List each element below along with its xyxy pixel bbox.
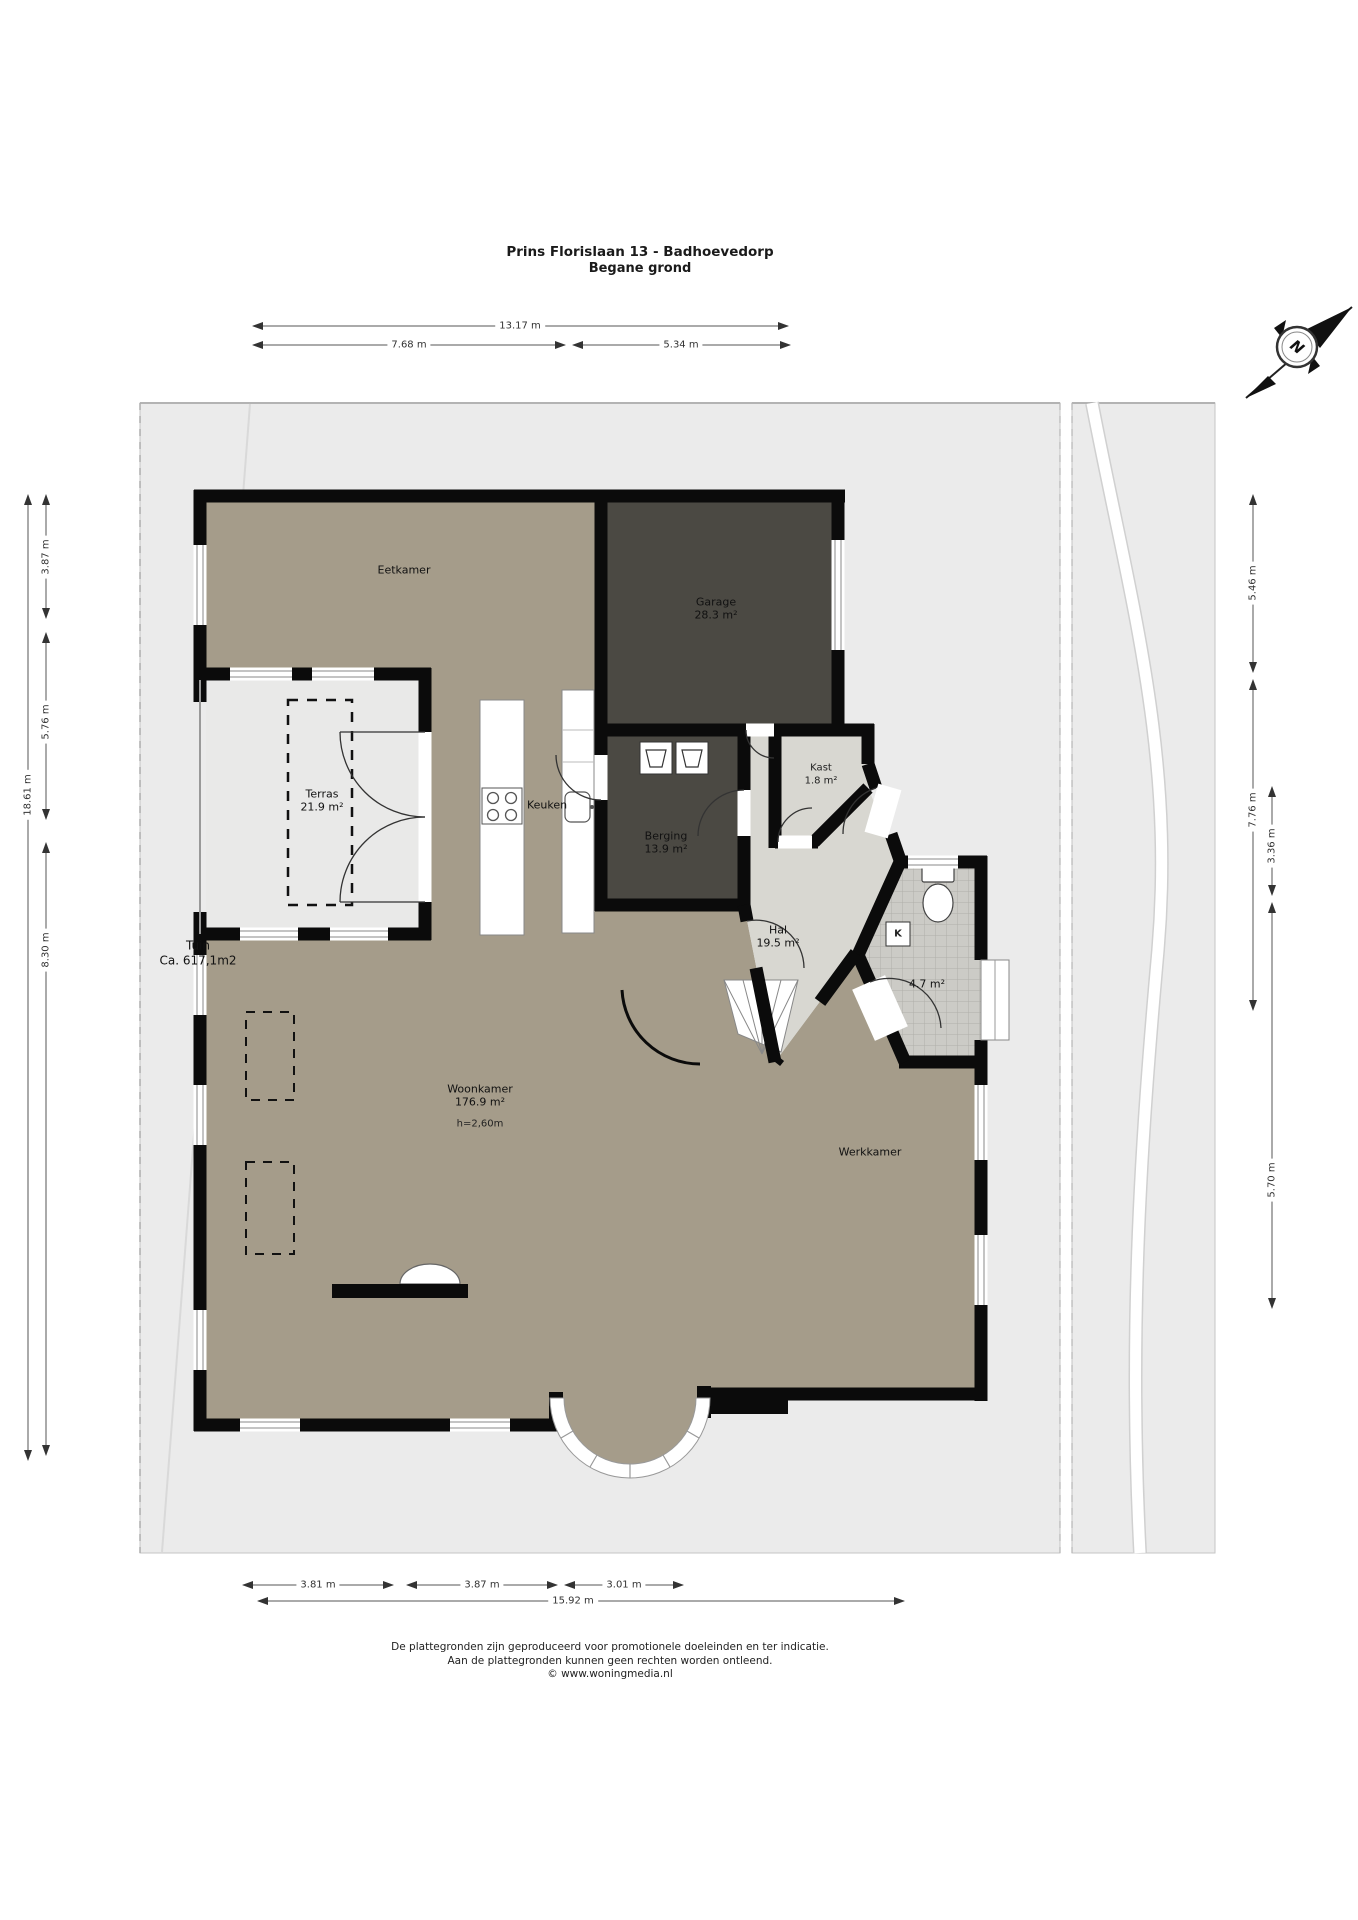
room-area-kast: 1.8 m² <box>805 775 838 788</box>
room-label-keuken: Keuken <box>527 799 567 812</box>
toilet-icon <box>922 866 954 922</box>
dim-left-2: 5.76 m <box>41 700 52 743</box>
parcel-boundary-right <box>1060 403 1072 1553</box>
dim-left-3: 8.30 m <box>41 928 52 971</box>
room-label-berging: Berging <box>645 830 688 843</box>
sink-icon <box>565 792 590 822</box>
dim-left-total: 18.61 m <box>23 770 34 820</box>
dim-left-1: 3.87 m <box>41 535 52 578</box>
disclaimer-line2: Aan de plattegronden kunnen geen rechten… <box>310 1655 910 1669</box>
room-label-eetkamer: Eetkamer <box>378 564 431 577</box>
wall-notch <box>700 1388 788 1414</box>
room-area-woonkamer: 176.9 m² <box>455 1096 505 1109</box>
dim-top-left: 7.68 m <box>387 340 430 351</box>
dim-bottom-total: 15.92 m <box>548 1596 598 1607</box>
dim-right-2: 7.76 m <box>1248 788 1259 831</box>
room-label-woonkamer: Woonkamer <box>447 1083 513 1096</box>
floorplan-page: Prins Florislaan 13 - Badhoevedorp Began… <box>0 0 1358 1920</box>
closet-k-label: K <box>894 929 902 940</box>
dim-top-total: 13.17 m <box>495 321 545 332</box>
page-subtitle: Begane grond <box>340 261 940 276</box>
dim-bottom-1: 3.81 m <box>296 1580 339 1591</box>
dim-right-1: 5.46 m <box>1248 561 1259 604</box>
dim-bottom-2: 3.87 m <box>460 1580 503 1591</box>
dim-right-3: 3.36 m <box>1267 824 1278 867</box>
room-height-woonkamer: h=2,60m <box>457 1118 504 1131</box>
disclaimer: De plattegronden zijn geproduceerd voor … <box>310 1641 910 1682</box>
room-label-kast: Kast <box>810 762 832 775</box>
room-area-garage: 28.3 m² <box>694 609 737 622</box>
room-area-hal: 19.5 m² <box>756 937 799 950</box>
room-area-badkamer: 4.7 m² <box>909 978 945 991</box>
garden-label-tuin: Tuin <box>186 940 210 953</box>
room-area-terras: 21.9 m² <box>300 801 343 814</box>
page-title: Prins Florislaan 13 - Badhoevedorp <box>340 244 940 260</box>
dim-right-4: 5.70 m <box>1267 1158 1278 1201</box>
disclaimer-line3: © www.woningmedia.nl <box>310 1668 910 1682</box>
garden-area-tuin: Ca. 617,1m2 <box>159 955 236 968</box>
room-label-hal: Hal <box>769 924 787 937</box>
stove-icon <box>482 788 522 824</box>
room-label-werkkamer: Werkkamer <box>839 1146 902 1159</box>
room-label-garage: Garage <box>696 596 736 609</box>
dim-bottom-3: 3.01 m <box>602 1580 645 1591</box>
room-label-terras: Terras <box>306 788 339 801</box>
dim-top-right: 5.34 m <box>659 340 702 351</box>
disclaimer-line1: De plattegronden zijn geproduceerd voor … <box>310 1641 910 1655</box>
room-area-berging: 13.9 m² <box>644 843 687 856</box>
